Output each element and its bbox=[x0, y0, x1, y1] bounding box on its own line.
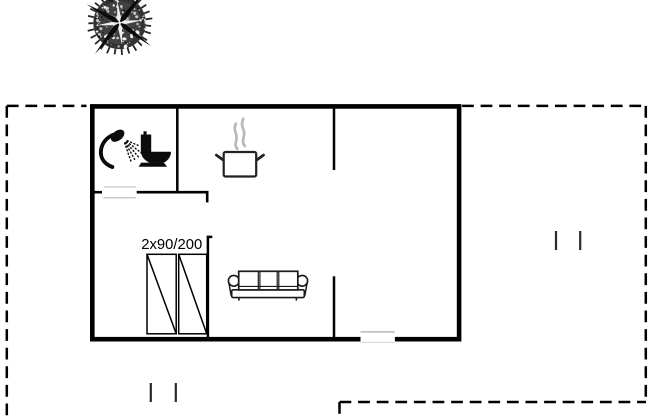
svg-text:2x90/200: 2x90/200 bbox=[141, 237, 202, 253]
